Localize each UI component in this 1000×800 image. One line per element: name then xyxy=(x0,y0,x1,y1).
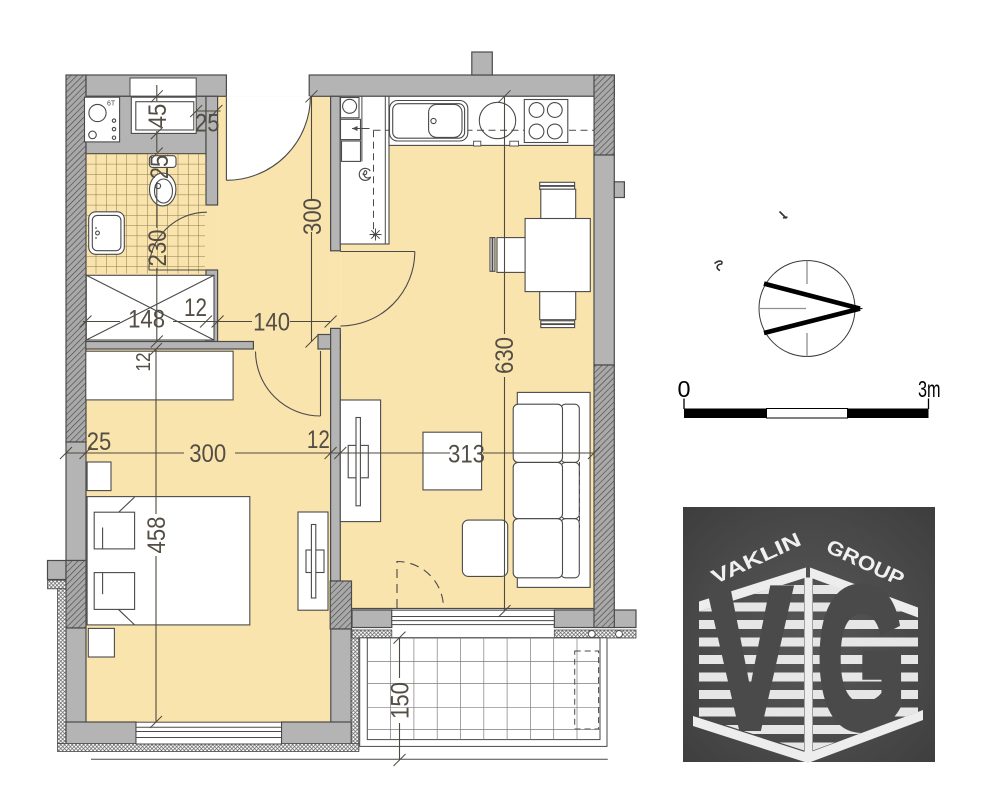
svg-text:45: 45 xyxy=(144,104,172,129)
svg-text:300: 300 xyxy=(189,440,226,468)
svg-text:630: 630 xyxy=(491,337,519,374)
svg-text:25: 25 xyxy=(146,155,174,180)
svg-text:12: 12 xyxy=(133,353,155,372)
svg-text:300: 300 xyxy=(299,198,327,235)
svg-text:25: 25 xyxy=(87,428,112,456)
svg-text:458: 458 xyxy=(143,517,171,554)
svg-text:12: 12 xyxy=(307,426,330,454)
svg-text:313: 313 xyxy=(448,440,485,468)
svg-text:25: 25 xyxy=(195,109,220,137)
svg-text:150: 150 xyxy=(386,682,414,719)
svg-text:148: 148 xyxy=(128,306,165,334)
svg-text:12: 12 xyxy=(184,294,207,322)
svg-text:140: 140 xyxy=(253,308,290,336)
svg-text:230: 230 xyxy=(144,230,172,267)
svg-text:0: 0 xyxy=(678,376,691,402)
svg-text:3m: 3m xyxy=(918,376,941,402)
svg-text:6T: 6T xyxy=(107,101,116,108)
